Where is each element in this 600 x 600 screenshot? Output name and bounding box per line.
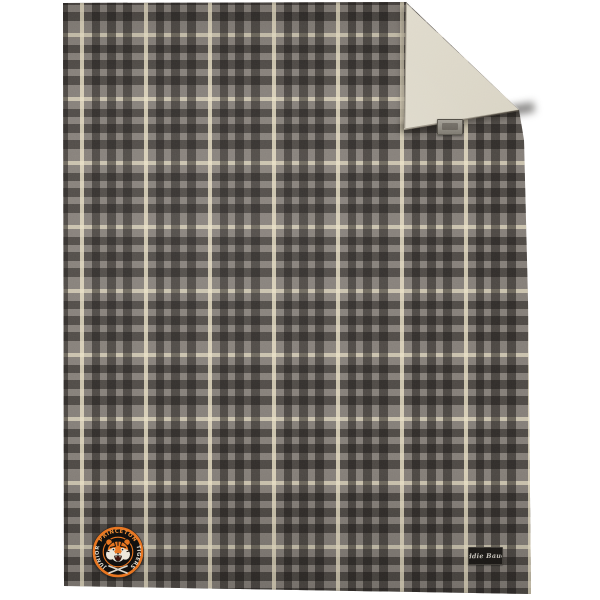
product-photo: PRINCETON TIGERS JUNIOR <box>0 0 600 600</box>
blanket-front-panel <box>0 0 600 600</box>
fold-hem-tag-print <box>442 123 458 130</box>
brand-tag-label: Eddie Bauer <box>468 552 503 561</box>
brand-tag: Eddie Bauer <box>468 547 503 565</box>
team-patch: PRINCETON TIGERS JUNIOR <box>92 526 144 578</box>
fold-hem-tag <box>437 119 463 135</box>
tiger-icon <box>106 539 130 562</box>
